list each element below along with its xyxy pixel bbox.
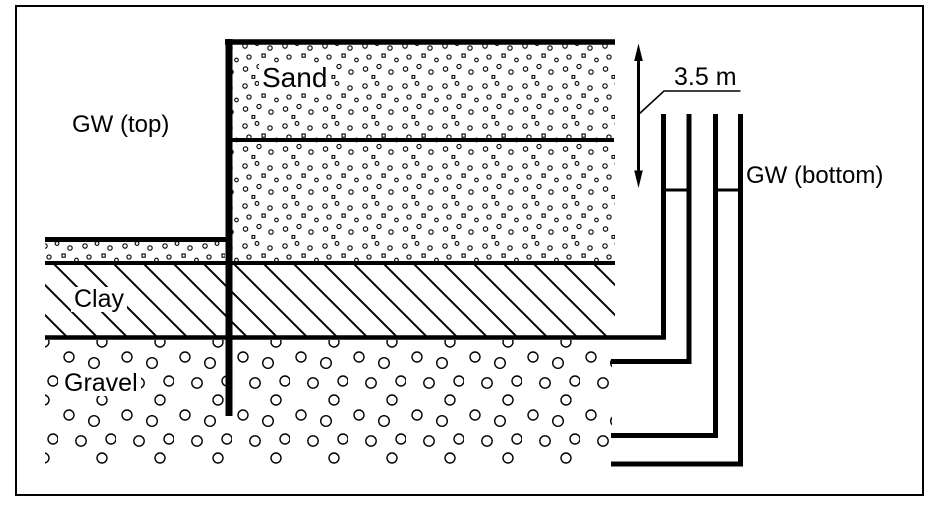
gw-bottom-label: GW (bottom)	[746, 164, 883, 188]
sheet-pile-wall	[226, 39, 233, 416]
geotech-cross-section-figure: GW (top) Sand Clay Gravel 3.5 m GW (bott…	[0, 0, 937, 519]
sand-strip-left	[45, 242, 225, 262]
clay-label: Clay	[71, 287, 127, 312]
clay-region	[45, 265, 615, 336]
gravel-region	[45, 340, 612, 466]
gw-top-label: GW (top)	[72, 113, 169, 137]
dimension-label: 3.5 m	[674, 65, 737, 90]
sand-label: Sand	[259, 64, 330, 92]
diagram-drawing	[0, 0, 937, 519]
gravel-label: Gravel	[61, 371, 141, 396]
